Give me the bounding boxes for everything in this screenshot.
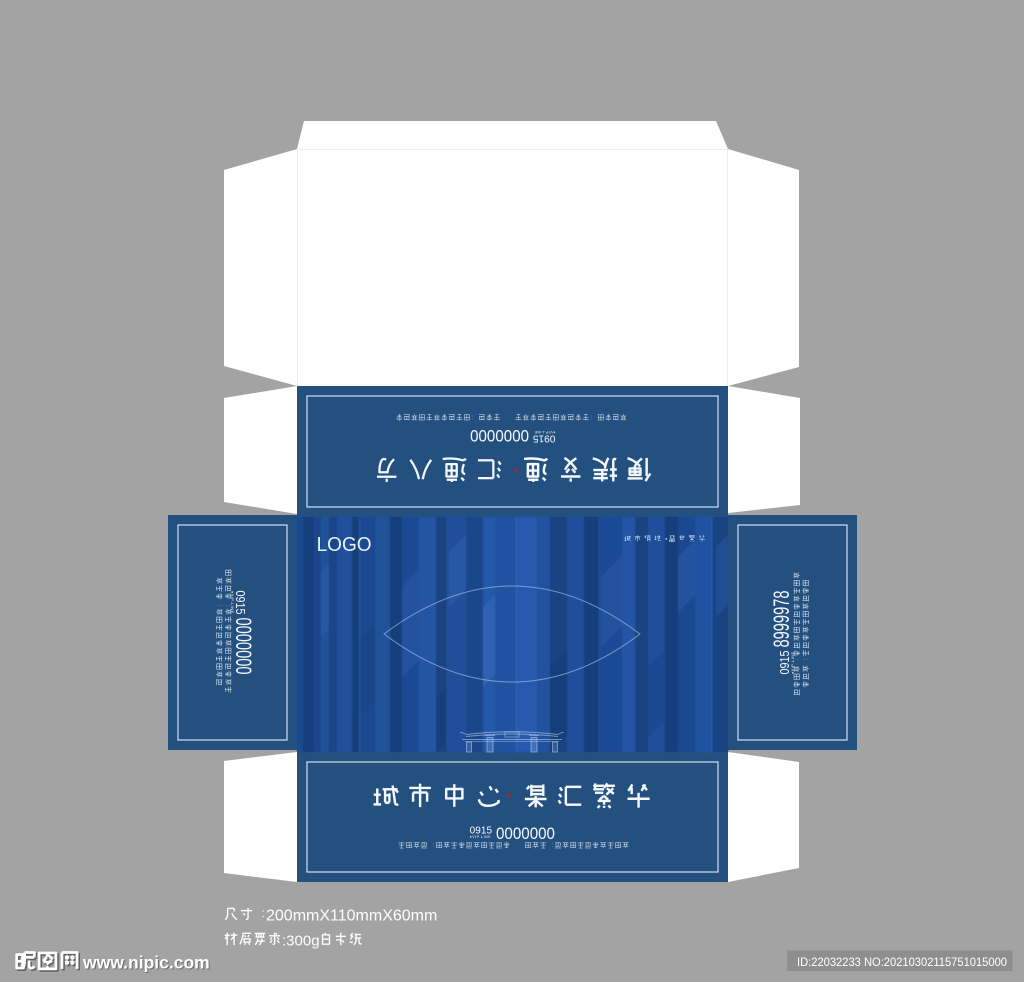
- svg-text:●VIP-LINE: ●VIP-LINE: [470, 835, 492, 839]
- svg-text:0000000: 0000000: [470, 426, 529, 444]
- svg-text:0000000: 0000000: [496, 825, 555, 843]
- svg-text:200mmX110mmX60mm: 200mmX110mmX60mm: [266, 908, 437, 925]
- svg-text:ID:22032233 NO:202103021157510: ID:22032233 NO:20210302115751015000: [797, 955, 1007, 969]
- svg-text:8999978: 8999978: [769, 591, 794, 648]
- svg-text:LOGO: LOGO: [317, 534, 372, 556]
- svg-text:0000000: 0000000: [231, 618, 256, 675]
- svg-text:0915: 0915: [777, 651, 792, 675]
- svg-text::300g: :300g: [282, 933, 320, 950]
- svg-text:0915: 0915: [233, 591, 248, 615]
- svg-text:●VIP-LINE: ●VIP-LINE: [534, 430, 556, 434]
- svg-text:www.nipic.com: www.nipic.com: [82, 953, 210, 973]
